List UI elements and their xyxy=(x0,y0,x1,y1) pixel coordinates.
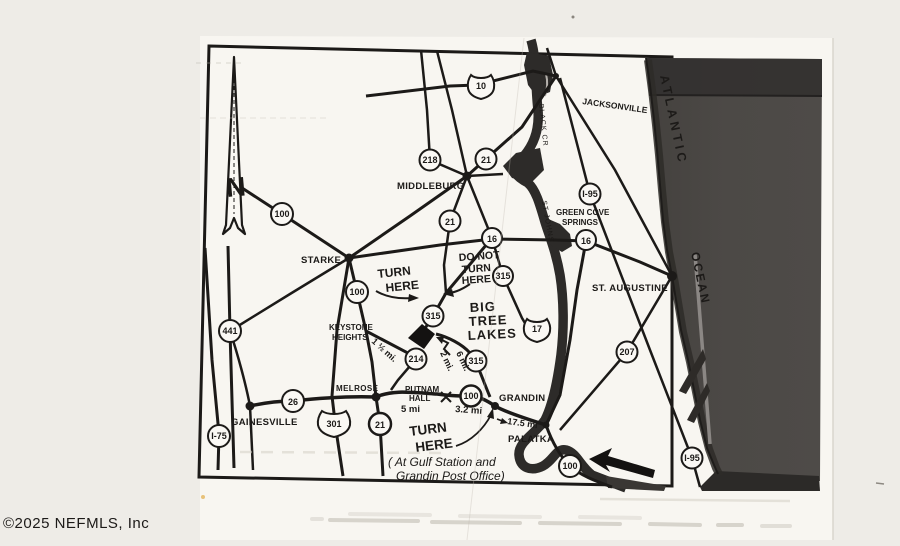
svg-text:HEIGHTS: HEIGHTS xyxy=(332,333,368,342)
svg-text:100: 100 xyxy=(463,391,478,401)
svg-text:©2025 NEFMLS, Inc: ©2025 NEFMLS, Inc xyxy=(3,515,149,532)
svg-text:21: 21 xyxy=(481,155,491,165)
svg-text:GAINESVILLE: GAINESVILLE xyxy=(231,417,298,428)
svg-text:10: 10 xyxy=(476,81,486,91)
svg-text:PUTNAM: PUTNAM xyxy=(405,385,440,394)
svg-text:315: 315 xyxy=(425,311,440,321)
svg-text:16: 16 xyxy=(487,234,497,244)
svg-text:100: 100 xyxy=(349,287,364,297)
svg-text:26: 26 xyxy=(288,397,298,407)
svg-text:214: 214 xyxy=(408,354,423,364)
svg-text:GREEN COVE: GREEN COVE xyxy=(556,208,610,217)
svg-text:207: 207 xyxy=(619,347,634,357)
svg-text:21: 21 xyxy=(445,217,455,227)
svg-text:LAKES: LAKES xyxy=(467,325,517,343)
svg-text:( At Gulf Station and: ( At Gulf Station and xyxy=(388,455,496,469)
svg-text:218: 218 xyxy=(422,155,437,165)
svg-text:16: 16 xyxy=(581,236,591,246)
svg-text:HALL: HALL xyxy=(409,394,430,403)
svg-text:I-95: I-95 xyxy=(582,189,598,199)
svg-text:KEYSTONE: KEYSTONE xyxy=(329,323,374,332)
svg-text:I-95: I-95 xyxy=(684,453,700,463)
svg-text:ST. AUGUSTINE: ST. AUGUSTINE xyxy=(592,283,668,294)
svg-text:GRANDIN: GRANDIN xyxy=(499,393,545,404)
svg-text:Grandin Post Office): Grandin Post Office) xyxy=(396,469,505,483)
svg-text:21: 21 xyxy=(375,420,385,430)
svg-text:HERE: HERE xyxy=(461,273,491,287)
svg-text:5 mi: 5 mi xyxy=(401,404,420,415)
svg-text:MELROSE: MELROSE xyxy=(336,384,379,393)
svg-text:3.2 mi: 3.2 mi xyxy=(455,404,483,417)
svg-text:STARKE.: STARKE. xyxy=(301,255,344,266)
svg-text:MIDDLEBURG: MIDDLEBURG xyxy=(397,181,464,192)
svg-text:301: 301 xyxy=(326,419,341,429)
svg-text:I-75: I-75 xyxy=(211,431,227,441)
svg-text:100: 100 xyxy=(562,461,577,471)
svg-text:N: N xyxy=(225,171,247,203)
svg-text:100: 100 xyxy=(274,209,289,219)
svg-text:441: 441 xyxy=(222,326,237,336)
svg-text:PALATKA: PALATKA xyxy=(508,434,554,445)
svg-text:17: 17 xyxy=(532,324,542,334)
svg-text:SPRINGS: SPRINGS xyxy=(562,218,599,227)
